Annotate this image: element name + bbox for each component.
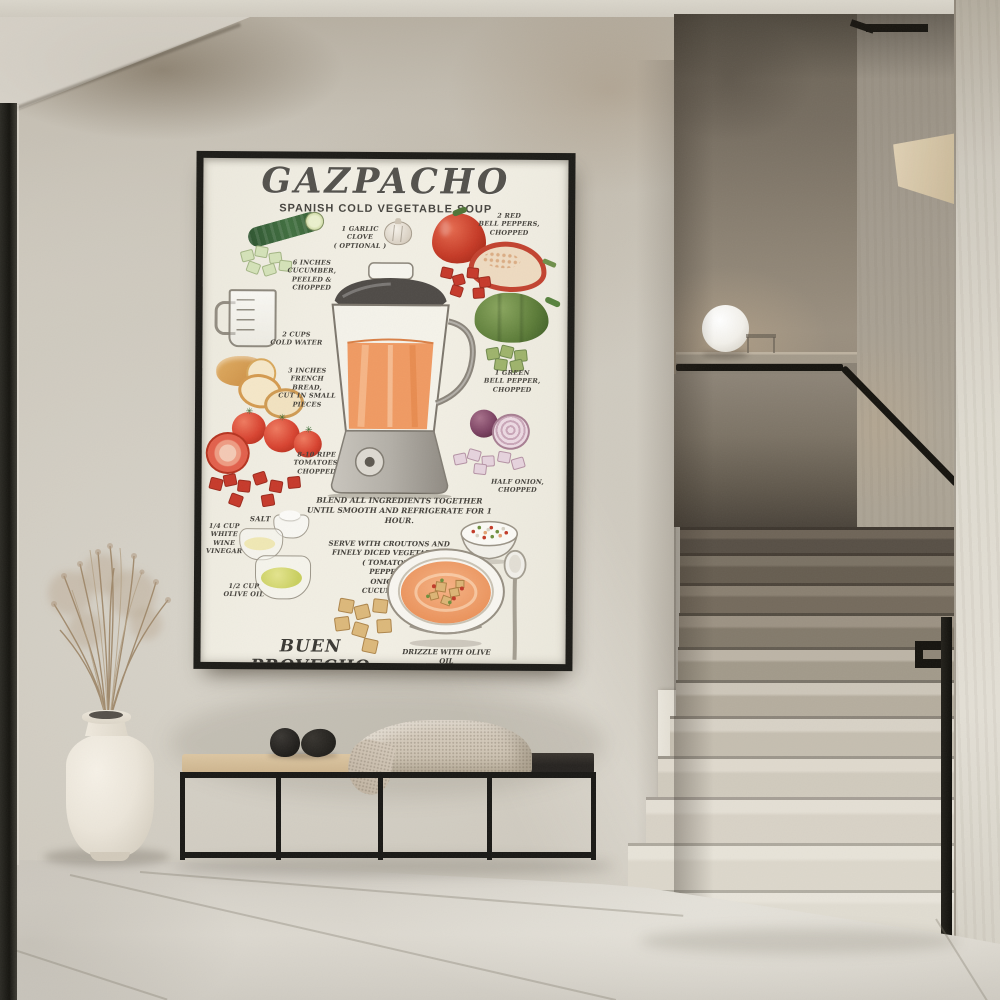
poster-title: GAZPACHO: [203, 160, 568, 203]
stairwell: [674, 14, 957, 946]
small-console-sketch: [746, 334, 776, 338]
bench-leg: [591, 772, 596, 860]
bench-frame-rail: [180, 852, 596, 858]
stair-step: [628, 843, 957, 893]
dried-grass: [40, 538, 190, 728]
stair-step: [670, 716, 957, 759]
right-wall: [954, 0, 1000, 946]
vase-mouth: [89, 711, 123, 719]
bench-frame-rail: [180, 772, 596, 778]
upper-handrail: [866, 24, 928, 32]
ingredient-label-red-peppers: 2 REDBELL PEPPERS,CHOPPED: [475, 212, 543, 238]
ingredient-label-olive-oil: 1/2 CUPOLIVE OIL: [219, 582, 269, 599]
stair-step: [646, 797, 957, 846]
ingredient-label-green-pepper: 1 GREENBELL PEPPER,CHOPPED: [480, 369, 544, 395]
blender-illustration: [319, 259, 480, 500]
stair-step: [680, 583, 957, 616]
cucumber-illustration: [246, 210, 323, 249]
vase-foot: [90, 852, 130, 861]
measuring-cup-ticks: [236, 299, 254, 335]
bench-floor-shadow: [174, 856, 614, 876]
newel-post: [941, 617, 952, 940]
decor-stone: [270, 728, 300, 757]
stair-step: [658, 756, 957, 800]
stair-step: [676, 680, 957, 719]
recipe-poster: GAZPACHO SPANISH COLD VEGETABLE SOUP 6 I…: [200, 158, 568, 664]
footer-phrase: BUEN PROVECHO: [240, 636, 380, 664]
garlic-illustration: [384, 221, 412, 245]
ingredient-label-garlic: 1 GARLIC CLOVE( OPTIONAL ): [331, 225, 389, 251]
stair-step: [680, 527, 957, 556]
ingredient-label-water: 2 CUPSCOLD WATER: [268, 330, 324, 347]
stair-base-shadow: [640, 928, 960, 954]
door-frame-highlight: [17, 105, 19, 865]
interior-scene: GAZPACHO SPANISH COLD VEGETABLE SOUP 6 I…: [0, 0, 1000, 1000]
bench-wood-top: [526, 753, 594, 773]
handrail: [676, 364, 843, 371]
stair-step: [680, 553, 957, 586]
stairwell-back-wall: [674, 14, 857, 374]
ingredient-label-onion: HALF ONION,CHOPPED: [485, 478, 549, 495]
door-frame: [0, 103, 17, 1000]
stairwell-parapet-wall: [674, 374, 857, 527]
vase: [66, 734, 154, 856]
bench-leg: [487, 772, 492, 860]
ingredient-label-salt: SALT: [245, 514, 275, 523]
green-pepper-illustration: [474, 293, 548, 343]
footer-note: DRIZZLE WITH OLIVE OIL: [396, 647, 496, 664]
bench: [180, 718, 596, 872]
vase-with-dried-grass: [40, 538, 210, 868]
spoon-illustration: [499, 550, 532, 664]
sphere-lamp: [702, 305, 749, 352]
ingredient-label-vinegar: 1/4 CUPWHITEWINEVINEGAR: [205, 522, 243, 556]
poster-frame: GAZPACHO SPANISH COLD VEGETABLE SOUP 6 I…: [193, 151, 575, 671]
bench-leg: [378, 772, 383, 860]
measuring-cup-illustration: [214, 285, 276, 347]
bench-leg: [276, 772, 281, 860]
